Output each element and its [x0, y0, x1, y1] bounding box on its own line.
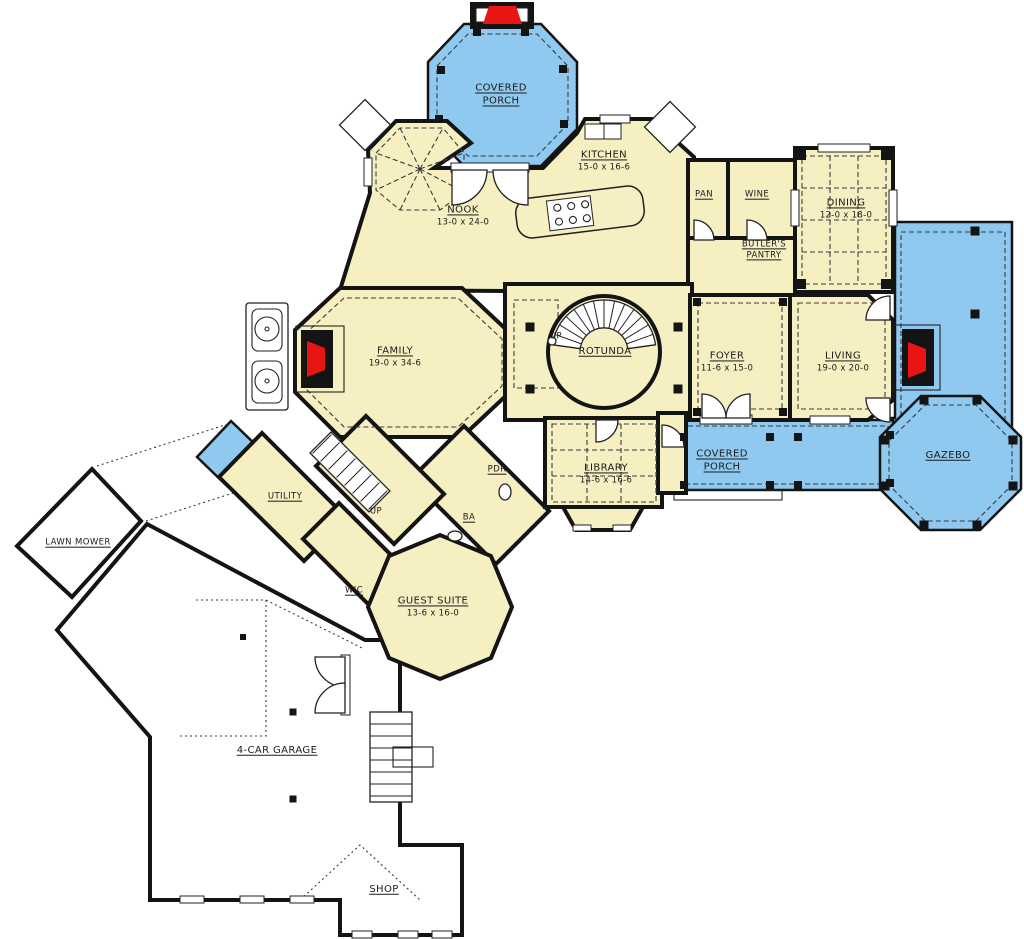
room-label-dining: DINING12-0 x 18-0	[820, 197, 872, 220]
room-label-foyer: FOYER11-6 x 15-0	[701, 350, 753, 373]
room-label-pdr: PDR	[488, 465, 507, 476]
room-label-kitchen: KITCHEN15-0 x 16-6	[578, 149, 630, 172]
floor-plan: COVEREDPORCH KITCHEN15-0 x 16-6 NOOK13-0…	[0, 0, 1024, 939]
kitchen-sink	[585, 124, 621, 139]
garage-stair	[370, 712, 433, 802]
garden-feature	[246, 303, 288, 410]
room-label-gazebo: GAZEBO	[926, 450, 971, 463]
room-label-rotunda: ROTUNDA	[579, 346, 632, 359]
room-label-living: LIVING19-0 x 20-0	[817, 350, 869, 373]
room-label-wine: WINE	[745, 190, 769, 201]
room-label-guest-suite: GUEST SUITE13-6 x 16-0	[398, 595, 468, 618]
label-up-back-stairs: UP	[370, 507, 382, 518]
gazebo-area	[880, 396, 1021, 530]
room-label-covered-porch-bottom: COVEREDPORCH	[696, 449, 748, 474]
room-label-library: LIBRARY14-6 x 16-6	[580, 462, 632, 485]
room-label-shop: SHOP	[369, 884, 398, 897]
room-label-utility: UTILITY	[268, 492, 302, 503]
room-label-covered-porch-top: COVEREDPORCH	[475, 83, 527, 108]
room-label-ba: BA	[463, 513, 475, 524]
room-label-wic: WIC	[345, 586, 363, 597]
floor-plan-drawing	[0, 0, 1024, 939]
room-label-family: FAMILY19-0 x 34-6	[369, 345, 421, 368]
room-label-pan: PAN	[695, 190, 713, 201]
room-label-nook: NOOK13-0 x 24-0	[437, 204, 489, 227]
porch-fireplace	[470, 2, 534, 29]
room-label-lawn-mower: LAWN MOWER	[45, 538, 110, 549]
room-label-garage: 4-CAR GARAGE	[237, 745, 318, 758]
label-up-rotunda: UP	[550, 332, 562, 343]
room-label-butlers-pantry: BUTLER'SPANTRY	[742, 239, 786, 260]
